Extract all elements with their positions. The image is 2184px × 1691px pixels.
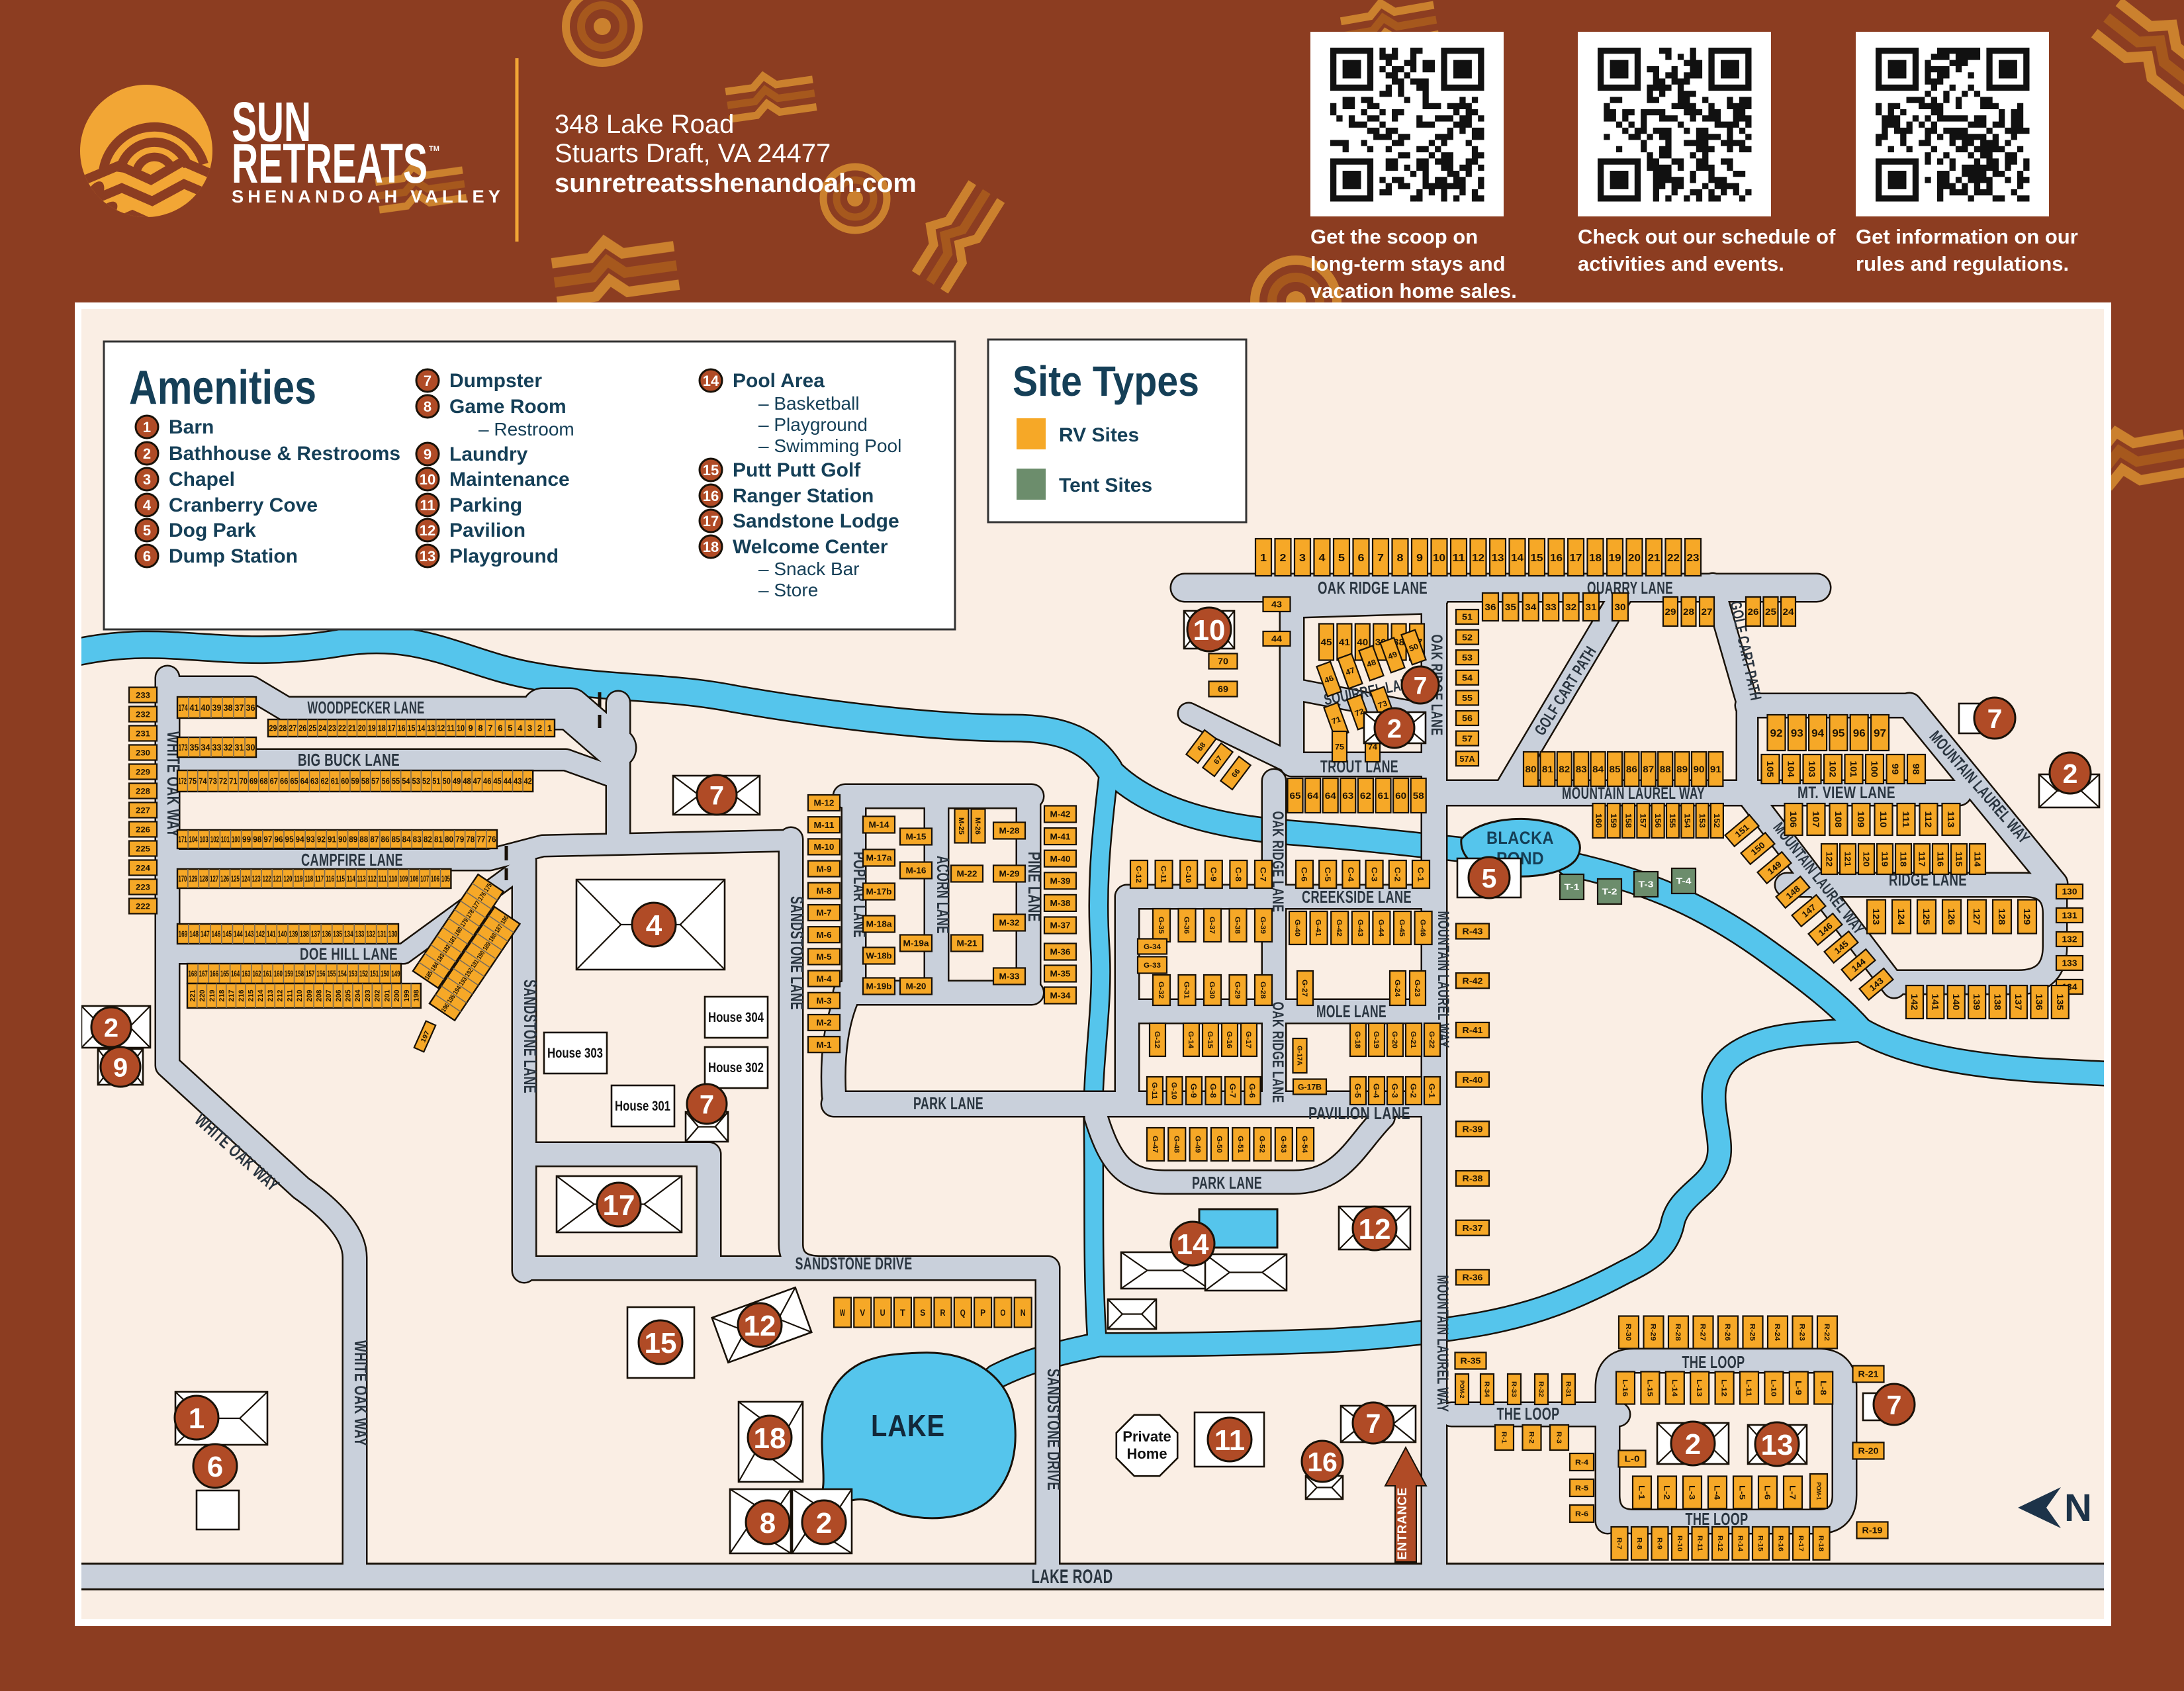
svg-text:214: 214 — [257, 989, 265, 1002]
svg-text:98: 98 — [253, 835, 261, 845]
svg-text:117: 117 — [315, 874, 324, 884]
svg-text:171: 171 — [179, 835, 187, 845]
svg-text:THE LOOP: THE LOOP — [1497, 1404, 1560, 1424]
svg-text:R-38: R-38 — [1463, 1173, 1483, 1183]
svg-text:56: 56 — [382, 776, 390, 786]
svg-text:5: 5 — [1482, 863, 1497, 893]
svg-text:35: 35 — [1505, 602, 1516, 612]
svg-text:G-27: G-27 — [1300, 980, 1308, 997]
svg-text:118: 118 — [1898, 852, 1908, 867]
svg-text:57: 57 — [1462, 733, 1473, 743]
svg-text:151: 151 — [370, 969, 379, 979]
svg-text:95: 95 — [285, 835, 294, 845]
svg-text:G-30: G-30 — [1208, 982, 1216, 999]
svg-text:– Basketball: – Basketball — [758, 393, 860, 414]
svg-text:Laundry: Laundry — [449, 443, 528, 465]
svg-text:152: 152 — [359, 969, 368, 979]
svg-text:M-35: M-35 — [1050, 969, 1071, 979]
svg-text:15: 15 — [408, 723, 416, 733]
svg-text:L-5: L-5 — [1738, 1485, 1747, 1500]
svg-text:15: 15 — [703, 462, 719, 479]
svg-text:104: 104 — [1786, 761, 1797, 778]
svg-text:64: 64 — [1325, 790, 1336, 801]
svg-text:130: 130 — [2062, 887, 2077, 897]
svg-text:96: 96 — [274, 835, 283, 845]
svg-text:85: 85 — [1610, 764, 1621, 774]
svg-text:122: 122 — [1824, 852, 1834, 867]
svg-text:221: 221 — [189, 989, 197, 1001]
svg-text:– Snack Bar: – Snack Bar — [758, 559, 860, 579]
svg-text:95: 95 — [1832, 728, 1844, 739]
svg-text:Bathhouse & Restrooms: Bathhouse & Restrooms — [169, 443, 400, 465]
svg-text:232: 232 — [136, 709, 150, 719]
svg-text:POM-1: POM-1 — [1815, 1483, 1822, 1500]
svg-text:89: 89 — [349, 835, 357, 845]
svg-text:SANDSTONE LANE: SANDSTONE LANE — [787, 896, 807, 1010]
svg-text:145: 145 — [222, 929, 232, 939]
svg-text:MOLE LANE: MOLE LANE — [1316, 1001, 1387, 1021]
svg-text:L-11: L-11 — [1745, 1379, 1752, 1396]
svg-text:174: 174 — [179, 702, 188, 713]
svg-text:C-2: C-2 — [1393, 867, 1402, 882]
svg-text:R-24: R-24 — [1773, 1324, 1781, 1342]
svg-text:49: 49 — [453, 776, 461, 786]
svg-text:OAK RIDGE LANE: OAK RIDGE LANE — [1269, 1002, 1287, 1103]
svg-text:114: 114 — [1972, 852, 1982, 868]
svg-text:M-12: M-12 — [814, 798, 835, 808]
svg-text:2: 2 — [1685, 1428, 1701, 1461]
svg-text:Get information on our: Get information on our — [1856, 225, 2078, 248]
svg-text:125: 125 — [231, 874, 240, 884]
svg-text:QUARRY LANE: QUARRY LANE — [1587, 578, 1673, 598]
svg-text:Cranberry Cove: Cranberry Cove — [169, 494, 318, 516]
svg-text:26: 26 — [298, 723, 306, 733]
svg-text:54: 54 — [1462, 673, 1473, 683]
svg-text:G-33: G-33 — [1144, 962, 1161, 970]
svg-text:208: 208 — [315, 989, 323, 1001]
svg-text:G-18: G-18 — [1353, 1031, 1361, 1048]
svg-text:122: 122 — [263, 874, 271, 884]
svg-text:111: 111 — [379, 874, 387, 884]
svg-text:R-9: R-9 — [1655, 1537, 1662, 1549]
svg-text:8: 8 — [760, 1507, 776, 1539]
svg-text:160: 160 — [1594, 813, 1604, 828]
svg-text:R-3: R-3 — [1555, 1432, 1562, 1443]
svg-text:116: 116 — [1935, 852, 1945, 867]
svg-text:156: 156 — [316, 969, 325, 979]
svg-text:L-9: L-9 — [1794, 1381, 1803, 1395]
svg-text:117: 117 — [1917, 852, 1927, 867]
svg-text:G-49: G-49 — [1194, 1136, 1202, 1153]
svg-text:111: 111 — [1901, 811, 1911, 828]
svg-text:44: 44 — [504, 776, 512, 786]
svg-text:62: 62 — [320, 776, 328, 786]
svg-text:R-36: R-36 — [1463, 1273, 1483, 1283]
svg-text:M-17b: M-17b — [866, 887, 892, 897]
svg-text:G-42: G-42 — [1335, 919, 1343, 937]
svg-text:T-4: T-4 — [1676, 876, 1692, 886]
svg-text:138: 138 — [300, 929, 309, 939]
svg-text:4: 4 — [518, 723, 523, 733]
svg-text:9: 9 — [1416, 553, 1423, 564]
svg-text:R-7: R-7 — [1615, 1537, 1622, 1549]
svg-text:22: 22 — [338, 723, 346, 733]
svg-text:93: 93 — [306, 835, 315, 845]
svg-text:119: 119 — [1880, 852, 1889, 867]
svg-text:18: 18 — [378, 723, 386, 733]
svg-text:G-48: G-48 — [1172, 1136, 1180, 1153]
svg-text:119: 119 — [294, 874, 302, 884]
svg-text:1: 1 — [143, 419, 151, 435]
svg-text:Stuarts Draft, VA 24477: Stuarts Draft, VA 24477 — [555, 139, 831, 168]
svg-text:143: 143 — [245, 929, 254, 939]
svg-text:115: 115 — [1954, 852, 1964, 867]
svg-text:Maintenance: Maintenance — [449, 469, 570, 490]
svg-text:C-8: C-8 — [1234, 867, 1243, 882]
svg-text:P: P — [980, 1307, 985, 1318]
svg-text:125: 125 — [1921, 909, 1932, 925]
svg-text:2: 2 — [816, 1507, 832, 1539]
svg-text:W: W — [840, 1307, 845, 1318]
svg-text:M-19b: M-19b — [866, 982, 892, 991]
svg-text:19: 19 — [368, 723, 376, 733]
svg-text:25: 25 — [1765, 606, 1776, 617]
svg-text:R-23: R-23 — [1798, 1324, 1806, 1341]
svg-text:21: 21 — [348, 723, 356, 733]
svg-text:7: 7 — [1414, 672, 1428, 699]
svg-text:L-4: L-4 — [1713, 1485, 1722, 1500]
svg-text:M-32: M-32 — [999, 918, 1020, 928]
svg-text:13: 13 — [1492, 553, 1504, 564]
svg-text:2: 2 — [1387, 714, 1402, 743]
svg-text:27: 27 — [1702, 606, 1713, 617]
svg-text:G-3: G-3 — [1390, 1083, 1400, 1098]
svg-text:R-29: R-29 — [1649, 1324, 1657, 1341]
svg-text:M-21: M-21 — [957, 938, 978, 948]
svg-text:173: 173 — [179, 742, 188, 753]
svg-text:136: 136 — [322, 929, 332, 939]
svg-text:64: 64 — [300, 776, 309, 786]
svg-text:T-1: T-1 — [1565, 882, 1580, 892]
svg-text:8: 8 — [1397, 553, 1404, 564]
svg-text:101: 101 — [221, 835, 230, 845]
svg-text:25: 25 — [308, 723, 316, 733]
svg-text:9: 9 — [424, 446, 432, 463]
svg-text:N: N — [2064, 1486, 2092, 1530]
svg-text:R-19: R-19 — [1862, 1526, 1883, 1535]
svg-text:4: 4 — [143, 497, 152, 514]
svg-text:14: 14 — [417, 723, 426, 733]
svg-text:M-14: M-14 — [869, 820, 890, 830]
svg-text:W-18b: W-18b — [866, 951, 892, 961]
svg-text:126: 126 — [1946, 909, 1957, 925]
svg-text:157: 157 — [306, 969, 314, 979]
svg-text:Home: Home — [1126, 1445, 1167, 1462]
svg-text:PINE LANE: PINE LANE — [1024, 852, 1044, 922]
svg-text:17: 17 — [703, 513, 719, 529]
svg-text:204: 204 — [354, 989, 362, 1002]
svg-text:M-5: M-5 — [817, 952, 832, 962]
svg-text:109: 109 — [1856, 811, 1866, 828]
svg-text:224: 224 — [136, 863, 150, 872]
svg-text:7: 7 — [1887, 1390, 1902, 1420]
svg-text:15: 15 — [1531, 553, 1543, 564]
svg-text:141: 141 — [267, 929, 276, 939]
svg-text:5: 5 — [508, 723, 512, 733]
svg-text:169: 169 — [179, 929, 188, 939]
svg-text:13: 13 — [420, 548, 435, 565]
svg-text:220: 220 — [199, 989, 206, 1001]
svg-text:14: 14 — [703, 373, 719, 389]
svg-text:72: 72 — [219, 776, 227, 786]
svg-text:L-6: L-6 — [1763, 1485, 1772, 1500]
svg-text:90: 90 — [1694, 764, 1705, 774]
svg-text:161: 161 — [263, 969, 272, 979]
svg-text:36: 36 — [246, 702, 255, 713]
svg-text:Game Room: Game Room — [449, 396, 567, 418]
svg-text:14: 14 — [1511, 553, 1524, 564]
svg-text:60: 60 — [1395, 790, 1406, 801]
svg-text:94: 94 — [296, 835, 305, 845]
svg-text:78: 78 — [466, 835, 475, 845]
svg-text:M-36: M-36 — [1050, 947, 1071, 957]
svg-text:M-41: M-41 — [1050, 831, 1071, 841]
svg-text:G-4: G-4 — [1372, 1083, 1381, 1098]
svg-text:G-10: G-10 — [1170, 1082, 1178, 1099]
svg-text:42: 42 — [523, 776, 531, 786]
svg-text:84: 84 — [1592, 764, 1604, 774]
svg-text:R-34: R-34 — [1482, 1381, 1490, 1397]
svg-text:83: 83 — [413, 835, 422, 845]
svg-text:156: 156 — [1653, 813, 1662, 828]
svg-text:108: 108 — [410, 874, 418, 884]
svg-text:9: 9 — [469, 723, 473, 733]
svg-text:126: 126 — [220, 874, 229, 884]
svg-text:154: 154 — [1683, 813, 1692, 828]
svg-text:43: 43 — [514, 776, 522, 786]
svg-text:long-term stays and: long-term stays and — [1310, 252, 1506, 275]
svg-text:155: 155 — [327, 969, 336, 979]
svg-text:41: 41 — [190, 702, 199, 713]
svg-text:47: 47 — [473, 776, 481, 786]
svg-text:M-1: M-1 — [817, 1040, 832, 1050]
svg-text:G-54: G-54 — [1300, 1136, 1308, 1154]
svg-text:92: 92 — [1770, 728, 1783, 739]
svg-text:140: 140 — [1951, 994, 1962, 1011]
svg-text:THE LOOP: THE LOOP — [1686, 1509, 1749, 1529]
svg-text:R-37: R-37 — [1463, 1223, 1483, 1233]
svg-text:113: 113 — [1946, 811, 1956, 828]
svg-text:167: 167 — [199, 969, 208, 979]
svg-text:R-6: R-6 — [1575, 1510, 1588, 1518]
svg-text:139: 139 — [1972, 994, 1982, 1011]
svg-text:R-25: R-25 — [1749, 1324, 1756, 1341]
svg-text:R-20: R-20 — [1858, 1446, 1879, 1456]
svg-text:PARK LANE: PARK LANE — [913, 1093, 983, 1113]
svg-text:R-17: R-17 — [1797, 1535, 1804, 1551]
svg-text:G-40: G-40 — [1293, 919, 1301, 937]
svg-text:CREEKSIDE LANE: CREEKSIDE LANE — [1302, 887, 1412, 907]
svg-text:154: 154 — [338, 969, 347, 979]
svg-text:G-44: G-44 — [1377, 919, 1385, 937]
svg-text:56: 56 — [1462, 713, 1473, 723]
svg-text:153: 153 — [349, 969, 357, 979]
svg-text:10: 10 — [457, 723, 465, 733]
svg-text:R-11: R-11 — [1696, 1535, 1703, 1551]
svg-text:36: 36 — [1485, 602, 1496, 612]
svg-text:23: 23 — [1687, 553, 1700, 564]
svg-text:BIG BUCK LANE: BIG BUCK LANE — [298, 750, 400, 770]
svg-text:6: 6 — [498, 723, 502, 733]
svg-text:163: 163 — [242, 969, 250, 979]
svg-text:R-5: R-5 — [1575, 1485, 1588, 1492]
svg-text:5: 5 — [143, 522, 151, 539]
svg-text:52: 52 — [422, 776, 430, 786]
svg-text:20: 20 — [358, 723, 366, 733]
svg-text:G-38: G-38 — [1234, 917, 1242, 934]
svg-text:149: 149 — [391, 969, 400, 979]
svg-text:120: 120 — [1861, 852, 1871, 867]
svg-text:59: 59 — [351, 776, 359, 786]
svg-text:215: 215 — [248, 989, 255, 1001]
svg-text:198: 198 — [413, 989, 421, 1001]
svg-text:G-12: G-12 — [1153, 1031, 1161, 1048]
svg-text:57A: 57A — [1460, 754, 1476, 764]
svg-text:172: 172 — [179, 776, 187, 786]
svg-text:9: 9 — [113, 1053, 128, 1082]
svg-text:M-8: M-8 — [817, 886, 832, 896]
svg-text:R-1: R-1 — [1500, 1432, 1507, 1443]
svg-text:24: 24 — [1783, 606, 1794, 617]
svg-text:G-17A: G-17A — [1295, 1046, 1302, 1066]
svg-text:WHITE OAK WAY: WHITE OAK WAY — [351, 1340, 371, 1446]
svg-text:1: 1 — [189, 1402, 205, 1435]
svg-text:16: 16 — [1307, 1447, 1338, 1477]
svg-text:M-16: M-16 — [906, 866, 927, 876]
svg-text:M-9: M-9 — [817, 864, 832, 874]
svg-text:G-17: G-17 — [1244, 1031, 1252, 1048]
svg-text:M-25: M-25 — [957, 817, 965, 835]
svg-text:G-53: G-53 — [1279, 1136, 1287, 1153]
svg-text:2: 2 — [537, 723, 542, 733]
svg-text:28: 28 — [1683, 606, 1694, 617]
svg-text:146: 146 — [212, 929, 221, 939]
svg-text:141: 141 — [1930, 994, 1940, 1011]
svg-text:R-31: R-31 — [1564, 1381, 1571, 1397]
svg-text:114: 114 — [347, 874, 355, 884]
svg-text:103: 103 — [1807, 761, 1817, 778]
svg-text:53: 53 — [1462, 653, 1473, 663]
svg-text:40: 40 — [201, 702, 210, 713]
svg-text:34: 34 — [201, 742, 210, 753]
svg-text:G-35: G-35 — [1157, 917, 1165, 934]
svg-text:92: 92 — [317, 835, 326, 845]
svg-text:94: 94 — [1811, 728, 1824, 739]
svg-text:45: 45 — [493, 776, 501, 786]
svg-text:Welcome Center: Welcome Center — [733, 536, 888, 558]
svg-text:G-32: G-32 — [1157, 982, 1165, 999]
svg-text:65: 65 — [290, 776, 298, 786]
svg-text:69: 69 — [250, 776, 257, 786]
svg-text:97: 97 — [263, 835, 272, 845]
svg-text:M-29: M-29 — [999, 869, 1020, 879]
svg-text:R-22: R-22 — [1823, 1324, 1831, 1341]
svg-text:C-6: C-6 — [1300, 867, 1309, 882]
svg-text:R-28: R-28 — [1674, 1324, 1682, 1341]
svg-text:G-14: G-14 — [1187, 1031, 1195, 1049]
svg-text:199: 199 — [403, 989, 411, 1001]
svg-text:G-50: G-50 — [1215, 1136, 1223, 1153]
svg-text:LAKE ROAD: LAKE ROAD — [1032, 1566, 1113, 1588]
svg-text:91: 91 — [328, 835, 336, 845]
svg-text:38: 38 — [224, 702, 233, 713]
svg-text:206: 206 — [335, 989, 343, 1001]
svg-text:207: 207 — [325, 989, 333, 1001]
svg-text:11: 11 — [447, 723, 455, 733]
svg-text:SANDSTONE DRIVE: SANDSTONE DRIVE — [796, 1254, 913, 1273]
svg-text:16: 16 — [398, 723, 406, 733]
svg-text:63: 63 — [1342, 790, 1353, 801]
svg-text:130: 130 — [388, 929, 398, 939]
svg-text:128: 128 — [1997, 909, 2007, 925]
svg-text:G-1: G-1 — [1428, 1083, 1437, 1098]
svg-text:35: 35 — [190, 742, 199, 753]
svg-text:123: 123 — [252, 874, 261, 884]
svg-text:10: 10 — [1193, 614, 1226, 647]
svg-text:17: 17 — [388, 723, 396, 733]
svg-text:104: 104 — [189, 835, 199, 845]
svg-text:112: 112 — [368, 874, 377, 884]
svg-text:1: 1 — [1260, 553, 1267, 564]
svg-text:G-45: G-45 — [1398, 919, 1406, 937]
svg-text:91: 91 — [1710, 764, 1721, 774]
svg-text:60: 60 — [341, 776, 349, 786]
svg-text:80: 80 — [445, 835, 453, 845]
svg-text:15: 15 — [645, 1327, 677, 1359]
svg-text:54: 54 — [402, 776, 410, 786]
svg-text:RV Sites: RV Sites — [1059, 424, 1139, 446]
svg-text:G-21: G-21 — [1409, 1031, 1417, 1048]
svg-text:R-2: R-2 — [1527, 1432, 1535, 1443]
svg-text:O: O — [1000, 1307, 1005, 1318]
svg-text:PARK LANE: PARK LANE — [1192, 1173, 1262, 1193]
svg-text:90: 90 — [338, 835, 347, 845]
svg-text:105: 105 — [1765, 761, 1776, 778]
svg-text:137: 137 — [2013, 994, 2024, 1011]
svg-text:65: 65 — [1290, 790, 1301, 801]
svg-text:16: 16 — [1550, 553, 1563, 564]
svg-text:230: 230 — [136, 748, 150, 757]
svg-text:113: 113 — [357, 874, 366, 884]
svg-text:SANDSTONE DRIVE: SANDSTONE DRIVE — [1044, 1369, 1064, 1490]
svg-text:2: 2 — [1280, 553, 1287, 564]
svg-text:103: 103 — [200, 835, 208, 845]
svg-text:L-8: L-8 — [1819, 1381, 1828, 1395]
svg-text:7: 7 — [1366, 1408, 1381, 1439]
svg-text:G-52: G-52 — [1258, 1136, 1266, 1153]
svg-text:G-37: G-37 — [1208, 917, 1216, 934]
svg-text:32: 32 — [224, 742, 233, 753]
svg-text:M-4: M-4 — [817, 974, 833, 983]
svg-text:SANDSTONE LANE: SANDSTONE LANE — [520, 980, 540, 1093]
svg-text:R-42: R-42 — [1463, 976, 1483, 985]
svg-text:210: 210 — [296, 989, 304, 1001]
svg-text:L-15: L-15 — [1645, 1379, 1653, 1396]
svg-text:10: 10 — [1433, 553, 1445, 564]
svg-text:30: 30 — [246, 742, 255, 753]
svg-text:124: 124 — [242, 874, 250, 884]
svg-text:Chapel: Chapel — [169, 469, 235, 490]
